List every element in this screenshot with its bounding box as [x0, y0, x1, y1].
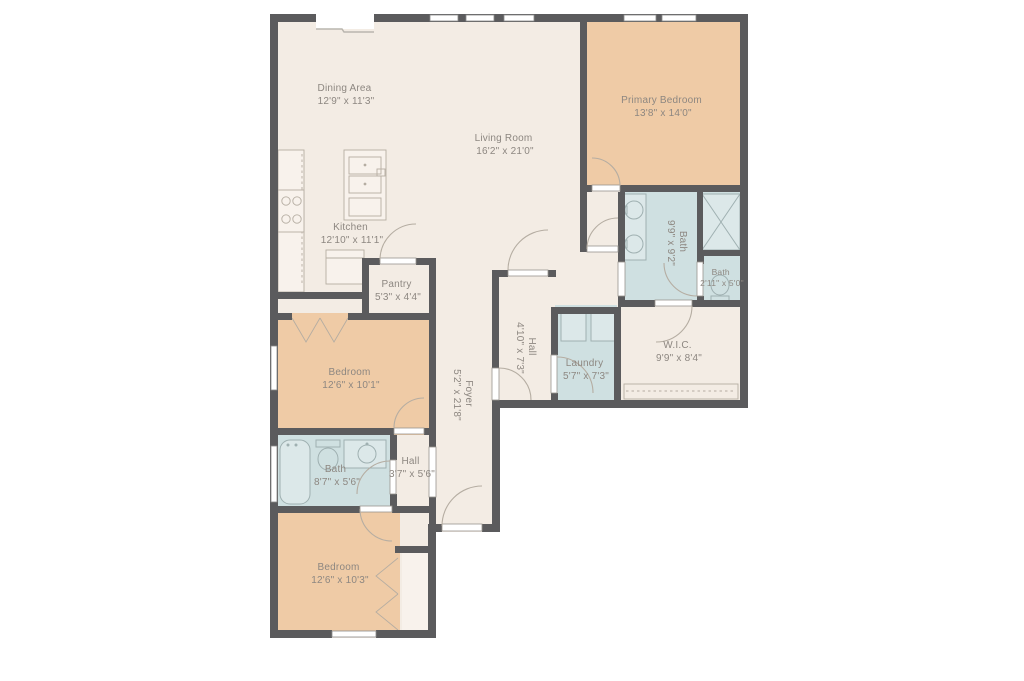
door-leaf	[592, 185, 620, 191]
washer	[561, 313, 586, 341]
faucet-icon	[366, 443, 369, 446]
window	[466, 15, 494, 21]
window	[430, 15, 458, 21]
window	[624, 15, 656, 21]
window	[504, 15, 534, 21]
window	[271, 346, 277, 390]
vanity	[344, 440, 386, 468]
door-leaf	[380, 258, 416, 264]
front-door-leaf	[442, 524, 482, 531]
door-leaf	[587, 246, 618, 252]
door-leaf	[508, 270, 548, 276]
cased-opening	[618, 262, 625, 296]
window	[662, 15, 696, 21]
door-leaf	[394, 428, 424, 434]
sink-drain-icon	[364, 183, 367, 186]
tub-faucet-icon	[295, 444, 298, 447]
range	[278, 190, 304, 232]
double-vanity	[622, 194, 646, 260]
sink-drain-icon	[364, 164, 367, 167]
floor-plan: Dining Area 12'9" x 11'3" Living Room 16…	[0, 0, 1024, 681]
window	[271, 446, 277, 502]
window	[332, 631, 376, 637]
tub-faucet-icon	[287, 444, 290, 447]
door-leaf	[492, 368, 499, 400]
door-leaf	[655, 300, 692, 306]
floorplan-canvas: Dining Area 12'9" x 11'3" Living Room 16…	[0, 0, 1024, 681]
lower-closet-floor	[402, 553, 428, 630]
door-leaf	[551, 355, 557, 393]
dryer	[591, 313, 616, 341]
bathtub	[280, 440, 310, 504]
refrigerator	[326, 250, 364, 284]
wall-recess	[316, 14, 374, 29]
door-leaf	[360, 506, 392, 512]
